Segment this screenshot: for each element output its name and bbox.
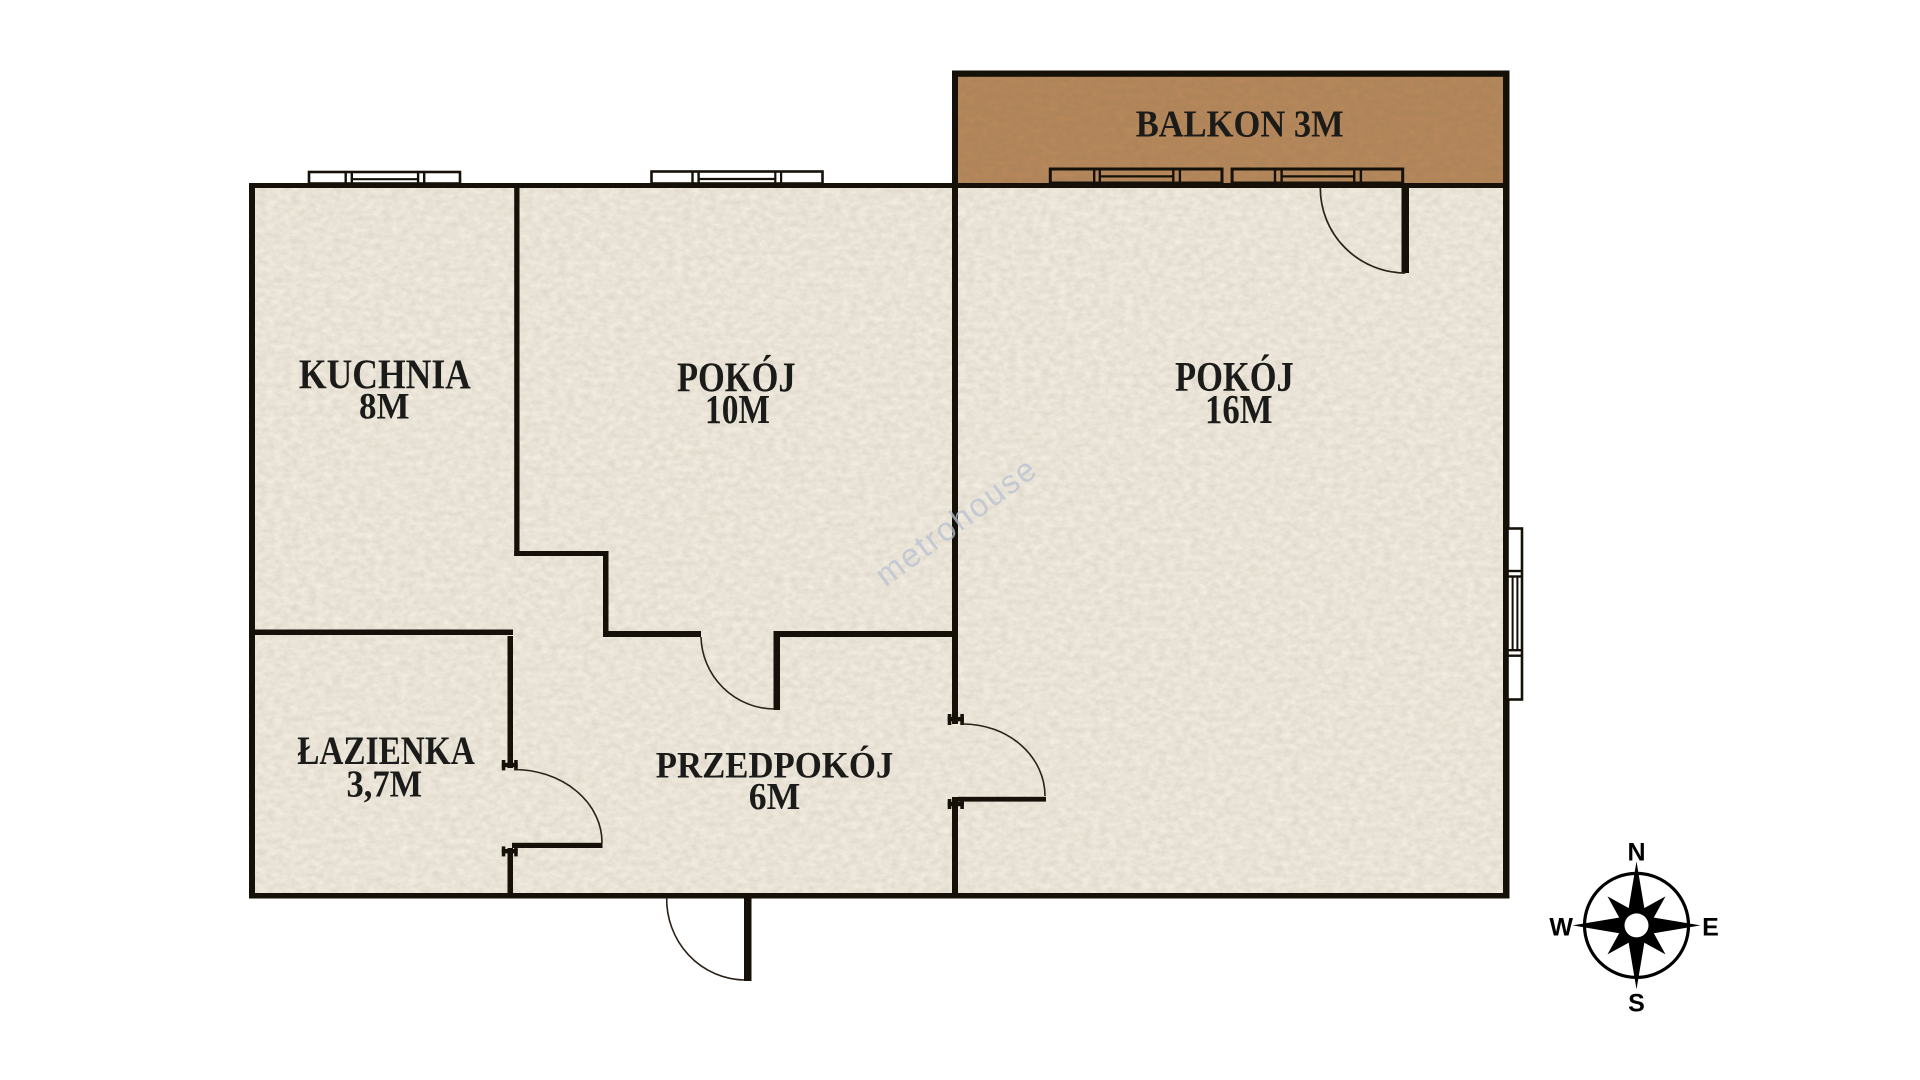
svg-text:3,7M: 3,7M (347, 764, 423, 806)
svg-text:W: W (1549, 913, 1573, 941)
svg-text:6M: 6M (749, 776, 801, 818)
svg-text:10M: 10M (705, 386, 770, 432)
svg-text:N: N (1627, 839, 1645, 867)
svg-text:16M: 16M (1205, 386, 1273, 432)
svg-text:S: S (1628, 990, 1645, 1018)
svg-text:BALKON 3M: BALKON 3M (1136, 104, 1344, 146)
svg-text:E: E (1702, 913, 1719, 941)
svg-text:8M: 8M (359, 387, 410, 428)
